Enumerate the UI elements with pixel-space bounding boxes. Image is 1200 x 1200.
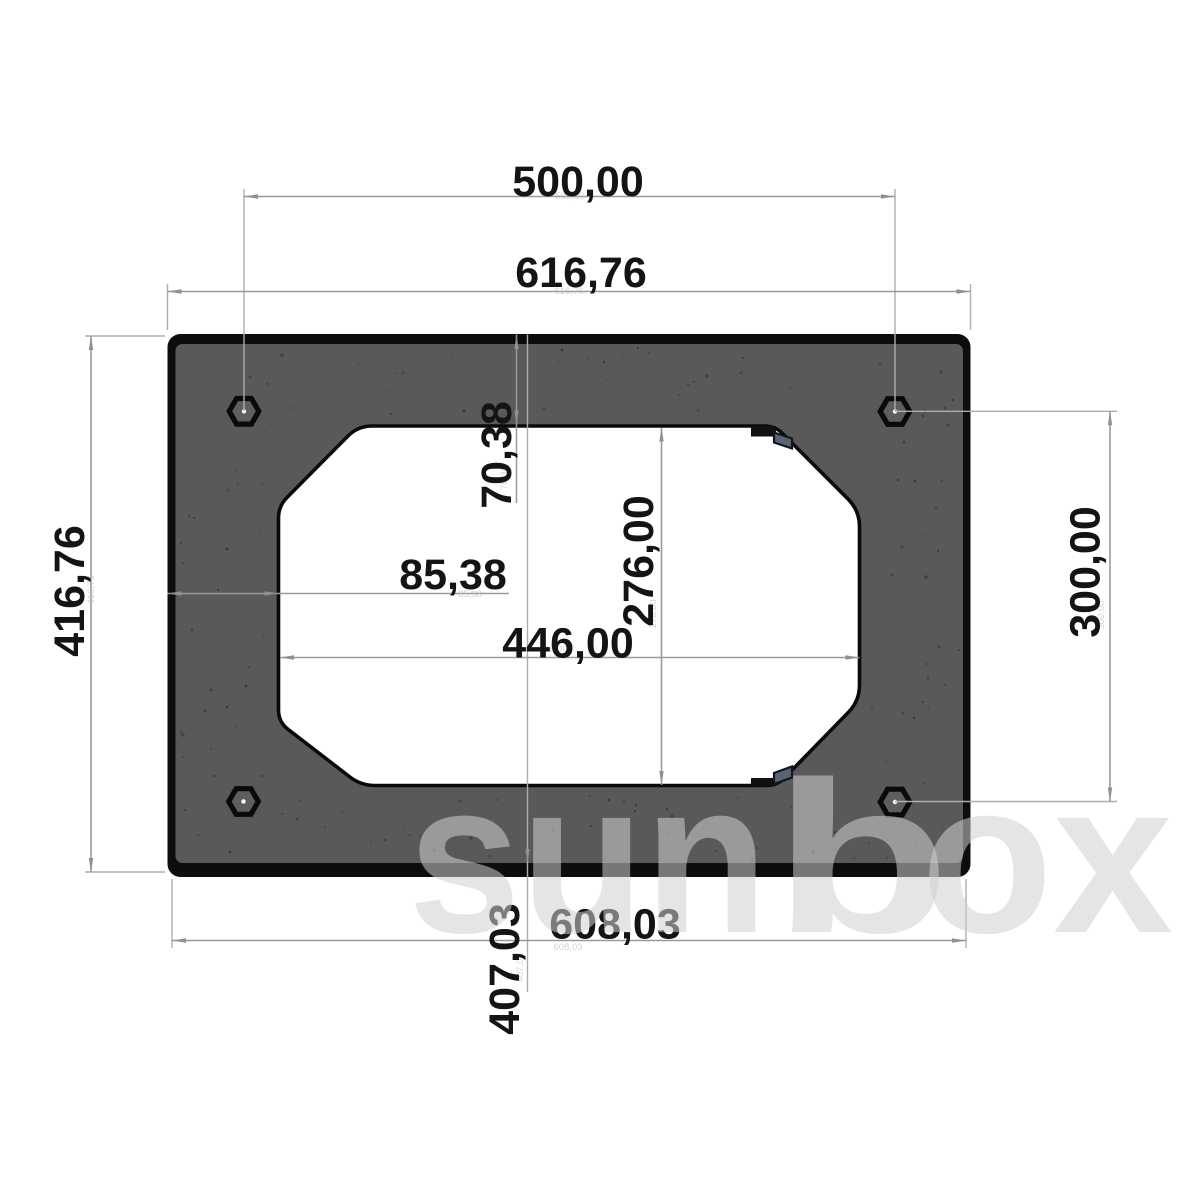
svg-text:sun: sun [408,736,768,978]
svg-text:85,38: 85,38 [399,551,507,599]
svg-text:616,76: 616,76 [515,249,647,297]
svg-text:276,00: 276,00 [615,495,663,627]
svg-text:ox: ox [921,736,1173,978]
svg-text:300,00: 300,00 [1062,506,1110,638]
svg-text:500,00: 500,00 [512,158,644,206]
svg-text:70,38: 70,38 [473,401,521,509]
svg-text:416,76: 416,76 [46,525,94,657]
